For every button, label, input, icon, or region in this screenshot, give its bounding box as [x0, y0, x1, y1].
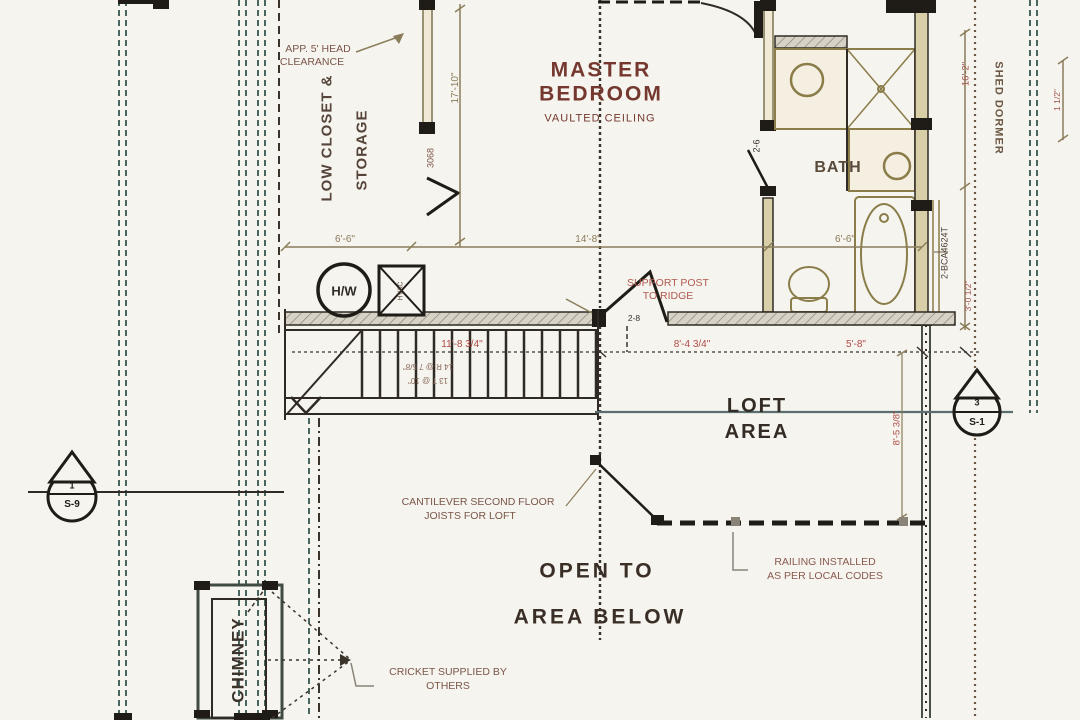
room-chimney: CHIMNEY: [230, 617, 247, 702]
dim-bedroom-depth: 17'-10": [451, 72, 461, 103]
cantilever-leader: [566, 469, 596, 506]
dim-stair-run: 11'-8 3/4": [441, 340, 482, 350]
dim-closet-width: 6'-6": [335, 235, 355, 245]
note-cricket-line1: CRICKET SUPPLIED BY: [389, 667, 507, 678]
closet-window-door: [419, 0, 458, 215]
door-bath-label: 2-6: [753, 139, 762, 152]
water-heater-label: H/W: [331, 285, 356, 298]
note-railing-line2: AS PER LOCAL CODES: [767, 571, 883, 582]
beam-label: 2-BCA4624T: [941, 227, 950, 279]
dim-loft-2: 5'-8": [846, 340, 866, 350]
marker-left-top: 1: [69, 482, 74, 491]
note-head-clearance-line1: APP. 5' HEAD: [285, 44, 350, 55]
room-loft-line2: AREA: [725, 422, 790, 442]
support-leader: [566, 299, 592, 313]
dim-loft-depth: 8'-5 3/8": [892, 411, 902, 446]
note-cantilever-line2: JOISTS FOR LOFT: [424, 511, 516, 522]
dim-wall-offset: 1 1/2": [1053, 89, 1062, 111]
note-stair-line1: 14 R @ 7 5/8": [403, 362, 453, 370]
bath-wall-window-door: [748, 0, 776, 312]
dim-loft-1: 8'-4 3/4": [674, 340, 711, 350]
note-head-clearance-line2: CLEARANCE: [280, 57, 344, 68]
room-master-line1: MASTER: [551, 60, 652, 81]
toilet: [789, 267, 829, 301]
loft-lines: [566, 350, 1013, 570]
top-walls: [118, 0, 936, 38]
room-closet-line2: STORAGE: [355, 110, 370, 191]
note-cricket-line2: OTHERS: [426, 681, 470, 692]
hvac-label: HVAC: [398, 282, 405, 301]
room-bath: BATH: [814, 160, 861, 176]
right-wall: [911, 0, 948, 718]
door-closet-label: 3068: [427, 148, 436, 168]
dim-dormer-length: 16'-2": [961, 62, 971, 86]
room-shed-dormer: SHED DORMER: [993, 61, 1004, 155]
marker-right-top: 3: [974, 399, 979, 408]
railing-leader: [733, 532, 748, 570]
room-closet-line1: LOW CLOSET &: [320, 75, 335, 202]
note-railing-line1: RAILING INSTALLED: [774, 557, 875, 568]
note-support-line1: SUPPORT POST: [627, 278, 709, 289]
bottom-stubs: [114, 713, 270, 720]
dim-dormer-offset: 3'-0 1/2": [964, 280, 973, 311]
cricket-leader: [351, 663, 374, 686]
room-loft-line1: LOFT: [727, 396, 787, 416]
room-open-line2: AREA BELOW: [514, 607, 687, 628]
room-open-line1: OPEN TO: [539, 561, 654, 582]
marker-left-bottom: S-9: [64, 500, 80, 510]
note-stair-line2: 13 T @ 10": [408, 376, 448, 384]
dim-bedroom-width: 14'-8": [575, 235, 600, 245]
door-bedroom-label: 2-8: [628, 314, 640, 323]
room-master-line2: BEDROOM: [539, 84, 663, 105]
room-master-sub: VAULTED CEILING: [544, 114, 655, 125]
loft-dim-line: [292, 347, 980, 357]
note-support-line2: TO RIDGE: [643, 291, 694, 302]
head-clearance-leader: [356, 37, 398, 52]
note-cantilever-line1: CANTILEVER SECOND FLOOR: [402, 497, 555, 508]
floor-plan: MASTER BEDROOM VAULTED CEILING BATH LOW …: [0, 0, 1080, 720]
dim-bath-width: 6'-6": [835, 235, 855, 245]
marker-right-bottom: S-1: [969, 418, 985, 428]
